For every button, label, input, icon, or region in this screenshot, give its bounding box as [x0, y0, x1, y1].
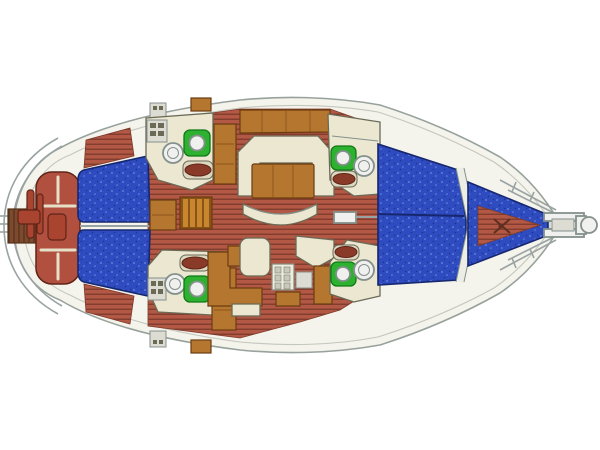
basin-icon	[185, 164, 211, 176]
basin-icon	[182, 257, 208, 269]
forward-head-port	[328, 114, 380, 196]
anchor-roller	[544, 213, 597, 237]
basin-icon	[333, 174, 355, 185]
saloon-locker-port	[214, 124, 236, 184]
deck-box	[191, 340, 211, 353]
sink-icon	[354, 260, 374, 280]
yacht-interior-plan-figure	[0, 0, 600, 450]
deck-hatch	[150, 331, 166, 347]
galley-cabinet-aft	[276, 292, 300, 306]
galley-counter-small	[296, 272, 312, 288]
basin-icon	[335, 247, 357, 258]
stove-icon	[272, 264, 294, 290]
saloon-table	[252, 164, 314, 198]
galley-lower-locker	[232, 304, 260, 316]
companionway	[150, 197, 212, 230]
sink-icon	[354, 156, 374, 176]
sink-icon	[163, 143, 183, 163]
yacht-deck-plan	[0, 0, 600, 450]
cockpit-table	[48, 214, 66, 240]
forward-head-starboard	[330, 240, 380, 302]
deck-box	[191, 98, 211, 111]
sink-icon	[165, 274, 185, 294]
bow-roller-knob	[581, 217, 597, 233]
saloon-sideboard-port	[240, 110, 330, 133]
aft-head-starboard-cabinet	[148, 278, 166, 300]
galley-island	[240, 238, 270, 276]
companionway-steps	[180, 197, 212, 229]
galley-cabinet-forward	[314, 266, 332, 304]
